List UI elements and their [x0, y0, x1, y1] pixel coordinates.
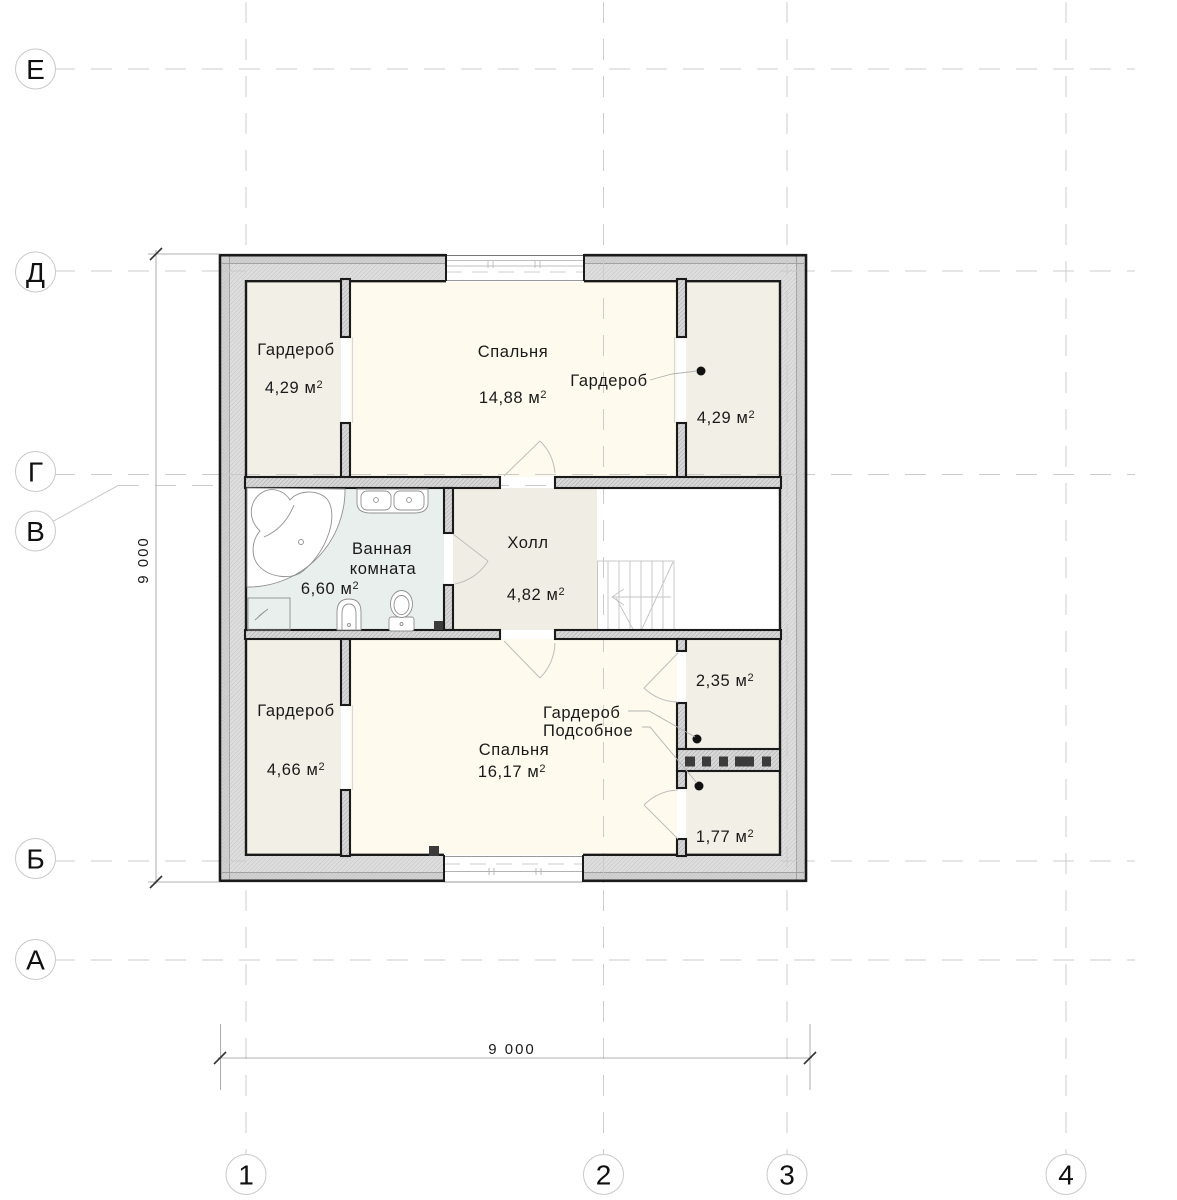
svg-text:4: 4	[1058, 1160, 1074, 1191]
svg-text:4,82 м2: 4,82 м2	[507, 586, 565, 604]
svg-text:Б: Б	[26, 844, 44, 875]
svg-text:Подсобное: Подсобное	[543, 722, 633, 740]
svg-text:1: 1	[238, 1160, 254, 1191]
svg-text:комната: комната	[350, 560, 417, 578]
svg-text:Спальня: Спальня	[478, 343, 549, 361]
svg-text:Е: Е	[26, 54, 45, 85]
svg-text:4,66 м2: 4,66 м2	[267, 761, 325, 779]
svg-text:Гардероб: Гардероб	[257, 702, 334, 720]
svg-text:2,35 м2: 2,35 м2	[696, 672, 754, 690]
svg-text:В: В	[26, 516, 45, 547]
svg-text:14,88 м2: 14,88 м2	[479, 389, 547, 407]
svg-text:Г: Г	[28, 457, 43, 488]
svg-text:3: 3	[779, 1160, 795, 1191]
svg-text:4,29 м2: 4,29 м2	[265, 379, 323, 397]
svg-text:Спальня: Спальня	[479, 741, 550, 759]
svg-text:Гардероб: Гардероб	[570, 372, 647, 390]
svg-text:4,29 м2: 4,29 м2	[697, 409, 755, 427]
svg-text:6,60 м2: 6,60 м2	[301, 580, 359, 598]
svg-text:1,77 м2: 1,77 м2	[696, 828, 754, 846]
svg-text:9 000: 9 000	[488, 1041, 536, 1058]
svg-text:Д: Д	[26, 257, 45, 288]
svg-text:Ванная: Ванная	[352, 540, 412, 558]
svg-text:Холл: Холл	[507, 534, 548, 552]
svg-text:2: 2	[596, 1160, 612, 1191]
svg-text:9 000: 9 000	[135, 536, 152, 584]
svg-text:Гардероб: Гардероб	[543, 704, 620, 722]
svg-text:Гардероб: Гардероб	[257, 341, 334, 359]
svg-text:А: А	[26, 945, 45, 976]
svg-text:16,17 м2: 16,17 м2	[478, 763, 546, 781]
